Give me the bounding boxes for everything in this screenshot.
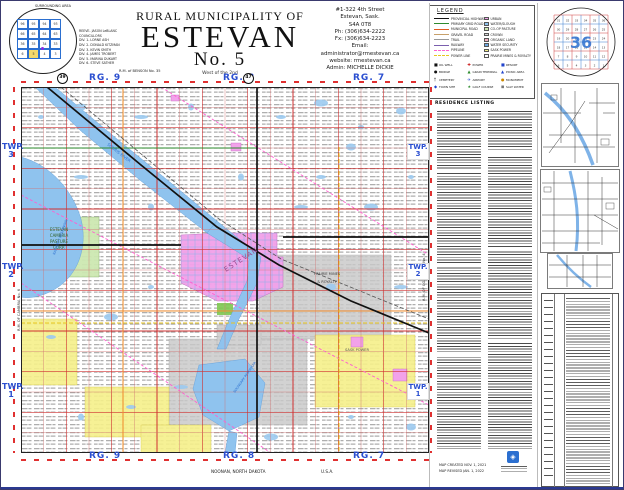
- section-number: 6: [558, 64, 560, 68]
- contact-line: S4A 0T8: [293, 22, 427, 29]
- legend-line-label: TRAIL: [451, 38, 460, 42]
- main-map: ESTEVAN ESTEVAN CAMBRIA PASTURE CORP. PR…: [21, 87, 429, 453]
- highway-shield: 47: [243, 73, 254, 84]
- rg-label-top: RG. 9: [89, 73, 121, 83]
- legend-area-label: SASK POWER: [491, 48, 512, 52]
- estevan-city-dot: [41, 47, 44, 50]
- section-number: 35: [593, 19, 597, 23]
- legend-symbol-label: GOLF COURSE: [473, 85, 494, 89]
- section-number: 4: [576, 64, 578, 68]
- legend-symbol-row: ■RESORT: [501, 61, 534, 69]
- twp-label-right: TWP. 2: [407, 263, 429, 280]
- listing-gap: [488, 339, 532, 343]
- contact-line: administrator@rmestevan.ca: [293, 51, 427, 58]
- section-number: 27: [584, 28, 588, 32]
- surrounding-rm-cell: 94: [39, 19, 50, 29]
- legend-line-label: PRIMARY GRID ROAD: [451, 22, 483, 26]
- section-number: 24: [602, 37, 606, 41]
- city-inset-map-3: [547, 253, 613, 289]
- residence-listing-col-1: [437, 111, 481, 449]
- legend-line-row: POWER LINE: [434, 53, 482, 58]
- legend-symbol-label: SALT WATER: [506, 85, 524, 89]
- legend-symbol-row: ★GOLF COURSE: [468, 84, 501, 92]
- lot-listing-table: [541, 293, 619, 487]
- rg-label-bottom: RG. 7: [353, 451, 385, 461]
- surrounding-rm-cell: 5: [28, 49, 39, 59]
- legend-line-label: PROVINCIAL HIGHWAY: [451, 17, 485, 21]
- twp-label-left: TWP. 3: [2, 143, 20, 159]
- sask-power-label: SASK POWER: [345, 348, 369, 352]
- legend-area-swatch: [484, 17, 489, 21]
- section-number: 23: [593, 37, 597, 41]
- panel-divider-left: [429, 3, 430, 487]
- surrounding-rm-cell: 4: [39, 49, 50, 59]
- contact-line: Email:: [293, 43, 427, 50]
- legend-symbol-row: ✚POWER: [468, 61, 501, 69]
- twp-label-left: TWP. 2: [2, 263, 20, 279]
- legend-area-swatch: [484, 33, 489, 37]
- surrounding-rm-cell: 35: [28, 39, 39, 49]
- twp-label-left: TWP. 1: [2, 383, 20, 399]
- legend-symbol-list: ■OIL WELL●BRIDGE†CEMETERY◆TOWN SITE✚POWE…: [434, 61, 534, 93]
- section-number: 32: [566, 19, 570, 23]
- legend-line-sample: [434, 34, 449, 35]
- section-number: 11: [593, 55, 597, 59]
- section-number: 8: [567, 55, 569, 59]
- noonan-label: NOONAN, NORTH DAKOTA: [211, 469, 266, 474]
- surrounding-rm-cell: 33: [50, 39, 61, 49]
- section-number: 7: [558, 55, 560, 59]
- legend-area-swatch: [484, 43, 489, 47]
- legend-area-label: CO-OP PASTURE: [491, 27, 516, 31]
- section-number: 1: [603, 64, 605, 68]
- rg-label-bottom: RG. 9: [89, 451, 121, 461]
- legend-symbol-label: OIL WELL: [439, 63, 453, 67]
- legend-symbol-label: POWER: [473, 63, 484, 67]
- legend-area-swatch: [484, 54, 489, 58]
- surrounding-rm-cell: 3: [50, 49, 61, 59]
- map-frame-tick-right: [430, 87, 432, 453]
- surrounding-rm-cell: 36: [17, 39, 28, 49]
- legend-symbol-label: CEMETERY: [439, 78, 454, 82]
- mines-label-2: & ROYALTY: [317, 280, 337, 284]
- surrounding-rm-cell: 93: [50, 19, 61, 29]
- legend-area-swatch: [484, 22, 489, 26]
- usa-label: U.S.A.: [321, 469, 334, 474]
- legend-area-row: PRAIRIE MINES & ROYALTY: [484, 53, 534, 58]
- legend-symbol-row: ▲GRAIN TERMINAL: [468, 69, 501, 77]
- legend-symbol-label: MONUMENT: [506, 78, 523, 82]
- legend-line-list: PROVINCIAL HIGHWAYPRIMARY GRID ROADMUNIC…: [434, 16, 482, 58]
- legend-symbol-label: AIRPORT: [473, 78, 485, 82]
- legend-symbol-row: ✈AIRPORT: [468, 76, 501, 84]
- surrounding-rm-grid: 9695949366656463363534336543: [17, 19, 61, 59]
- surrounding-rm-cell: 63: [50, 29, 61, 39]
- contact-line: #1-322 4th Street: [293, 7, 427, 14]
- surrounding-rm-cell: 64: [39, 29, 50, 39]
- contact-block: #1-322 4th StreetEstevan, Sask.S4A 0T8Ph…: [293, 7, 427, 73]
- legend-area-list: URBANWATER/SLOUGHCO-OP PASTURECROWNORGAN…: [484, 16, 534, 58]
- section-number: 36: [602, 19, 606, 23]
- contact-line: Fx: (306)634-2223: [293, 36, 427, 43]
- residence-listing-col-2: [488, 111, 532, 449]
- listing-gap: [488, 247, 532, 251]
- council-line: DIV. 6- STEVE SATHER: [79, 61, 129, 66]
- legend-line-sample: [434, 18, 449, 19]
- section-number: 12: [602, 55, 606, 59]
- sheet-bottom-rule: [1, 487, 623, 489]
- contact-line: Estevan, Sask.: [293, 14, 427, 21]
- section-number: 25: [602, 28, 606, 32]
- legend-line-sample: [434, 55, 449, 56]
- contact-line: Ph: (306)634-2222: [293, 29, 427, 36]
- legend-area-label: CROWN: [491, 33, 503, 37]
- twp-label-right: TWP. 3: [407, 143, 429, 160]
- legend-symbol-label: GRAIN TERMINAL: [473, 70, 498, 74]
- section-number: 19: [557, 37, 561, 41]
- legend-line-label: PIPELINE: [451, 48, 465, 52]
- legend-title: LEGEND: [437, 8, 464, 14]
- title-number: No. 5: [129, 49, 311, 71]
- contact-line: website: rmestevan.ca: [293, 58, 427, 65]
- legend-area-swatch: [484, 27, 489, 31]
- legend-area-label: PRAIRIE MINES & ROYALTY: [491, 54, 531, 58]
- legend-area-label: ORGANIC LAND: [491, 38, 515, 42]
- table-rule: [564, 294, 565, 488]
- legend-symbol-label: RESORT: [506, 63, 518, 67]
- section-number: 2: [594, 64, 596, 68]
- listing-gap: [437, 263, 481, 267]
- twp-label-right: TWP. 1: [407, 383, 429, 400]
- legend-line-label: RAILWAY: [451, 43, 464, 47]
- section-36-label: 36: [570, 33, 592, 52]
- section-number: 3: [585, 64, 587, 68]
- rg-label-top: RG. 7: [353, 73, 385, 83]
- contact-line: Admin: MICHELLE DICKIE: [293, 65, 427, 72]
- legend-symbol-row: ●BRIDGE: [434, 69, 467, 77]
- west-rm-label: R.M. OF CAMBRIA No. 6: [17, 289, 21, 331]
- surrounding-rm-cell: 66: [17, 29, 28, 39]
- mines-label-1: PRAIRIE MINES: [314, 272, 341, 276]
- map-sheet: SURROUNDING AREA 96959493666564633635343…: [0, 0, 624, 490]
- section-number: 10: [584, 55, 588, 59]
- listing-gap: [437, 169, 481, 173]
- map-revised-line: MAP REVISED JAN. 1, 2022: [439, 469, 484, 474]
- legend-line-sample: [434, 23, 449, 24]
- north-neighbor-label: R.M. of BENSON No. 35: [119, 69, 161, 73]
- section-number: 18: [557, 46, 561, 50]
- surrounding-rm-cell: 96: [17, 19, 28, 29]
- map-created-line: MAP CREATED NOV. 1, 2021: [439, 463, 486, 468]
- section-number: 26: [593, 28, 597, 32]
- legend-line-sample: [434, 29, 449, 30]
- section-number: 30: [557, 28, 561, 32]
- legend-area-swatch: [484, 49, 489, 53]
- rg-label-bottom: RG. 8: [223, 451, 255, 461]
- legend-area-label: URBAN: [491, 17, 502, 21]
- legend-line-sample: [434, 45, 449, 46]
- table-label-col: [544, 300, 553, 482]
- legend-area-label: WATER/SLOUGH: [491, 22, 516, 26]
- legend-line-sample: [434, 39, 449, 40]
- legend-symbol-row: ■OIL WELL: [434, 61, 467, 69]
- legend-line-label: GRAVEL ROAD: [451, 33, 473, 37]
- city-inset-map-2: [540, 169, 620, 253]
- listing-gap: [437, 353, 481, 357]
- surrounding-rm-cell: 6: [17, 49, 28, 59]
- legend-symbol-row: ◆TOWN SITE: [434, 84, 467, 92]
- section-number: 9: [576, 55, 578, 59]
- section-number: 31: [557, 19, 561, 23]
- legend-symbol-row: †CEMETERY: [434, 76, 467, 84]
- section-number: 29: [566, 28, 570, 32]
- highway-shield: 39: [57, 73, 68, 84]
- publisher-logo: ◈: [507, 451, 519, 463]
- section-numbering-inset: 3132333435363029282726251920212223241817…: [538, 3, 624, 81]
- section-number: 5: [567, 64, 569, 68]
- legend-line-label: MUNICIPAL ROAD: [451, 27, 478, 31]
- listing-gap: [488, 151, 532, 155]
- legend-area-swatch: [484, 38, 489, 42]
- table-rule: [612, 294, 613, 488]
- surrounding-area-title: SURROUNDING AREA: [23, 4, 83, 8]
- legend-symbol-label: BRIDGE: [439, 70, 450, 74]
- publisher-caption: [501, 466, 527, 472]
- section-number: 34: [584, 19, 588, 23]
- table-data-col: [566, 298, 610, 484]
- legend-line-label: POWER LINE: [451, 54, 470, 58]
- section-number: 14: [593, 46, 597, 50]
- city-inset-map-1: [541, 83, 619, 167]
- legend-symbol-label: PICNIC AREA: [506, 70, 524, 74]
- legend-symbol-row: ▲PICNIC AREA: [501, 69, 534, 77]
- section-number: 13: [602, 46, 606, 50]
- section-number: 28: [575, 28, 579, 32]
- surrounding-rm-cell: 95: [28, 19, 39, 29]
- surrounding-rm-cell: 65: [28, 29, 39, 39]
- section-number: 33: [575, 19, 579, 23]
- legend-symbol-row: ◼SALT WATER: [501, 84, 534, 92]
- residence-listing-title: RESIDENCE LISTING: [435, 101, 495, 106]
- table-rule: [554, 294, 555, 488]
- legend-line-sample: [434, 50, 449, 51]
- legend-area-label: WATER SECURITY: [491, 43, 518, 47]
- legend-symbol-row: ●MONUMENT: [501, 76, 534, 84]
- legend-symbol-label: TOWN SITE: [439, 85, 455, 89]
